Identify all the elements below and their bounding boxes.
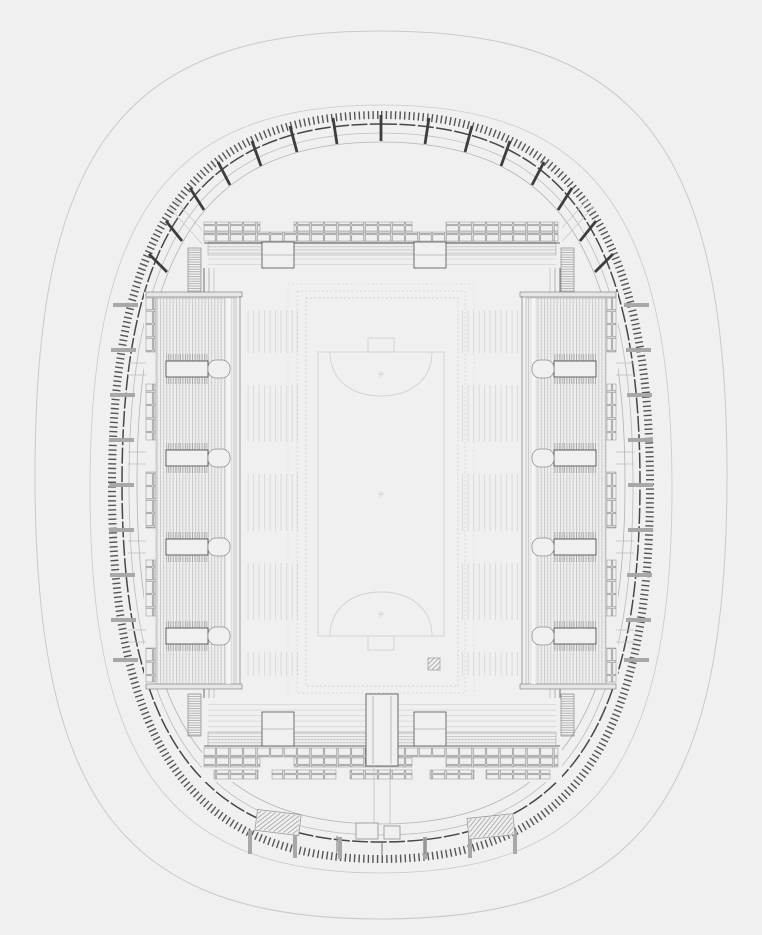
gate-kiosk	[356, 823, 378, 839]
surveyor-grid-mark	[428, 658, 440, 670]
corner-stair-ne	[561, 248, 574, 292]
stand-west-walkway	[226, 298, 231, 684]
stadium-plan-canvas	[0, 0, 762, 935]
stand-east-cap-north	[520, 292, 616, 297]
stand-west-cap-north	[146, 292, 242, 297]
stand-west-cap-south	[146, 684, 242, 689]
players-tunnel	[366, 694, 398, 766]
corner-stair-sw	[188, 694, 201, 736]
stand-north-seat-rows	[208, 242, 556, 255]
stand-north-box-row-b	[204, 232, 558, 241]
gate-kiosk	[384, 826, 400, 839]
gate-structure-east	[467, 814, 515, 840]
stand-north	[202, 220, 562, 268]
stand-north-lower-rows	[208, 256, 556, 267]
stadium-plan-drawing	[0, 0, 762, 935]
stand-north-box-row-a	[204, 222, 558, 231]
stand-east-walkway	[531, 298, 536, 684]
stand-east	[518, 292, 618, 689]
stand-south	[202, 694, 562, 782]
stand-west	[144, 292, 244, 689]
corner-stair-nw	[188, 248, 201, 292]
stand-east-cap-south	[520, 684, 616, 689]
corner-stair-se	[561, 694, 574, 736]
